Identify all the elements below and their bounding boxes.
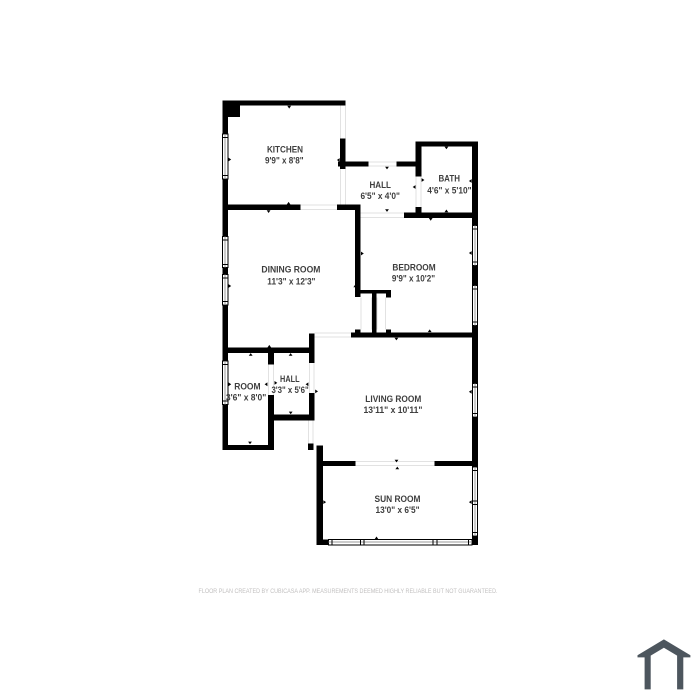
svg-text:KITCHEN: KITCHEN [267,145,303,155]
svg-text:LIVING ROOM: LIVING ROOM [365,394,421,404]
svg-text:3'3" x 5'6": 3'3" x 5'6" [271,385,308,395]
svg-text:FLOOR PLAN CREATED BY CUBICASA: FLOOR PLAN CREATED BY CUBICASA APP. MEAS… [199,588,498,595]
svg-text:13'0" x 6'5": 13'0" x 6'5" [376,505,420,515]
svg-text:HALL: HALL [369,180,391,190]
svg-text:ROOM: ROOM [234,381,260,391]
svg-text:4'6" x 5'10": 4'6" x 5'10" [427,185,471,195]
svg-text:9'9" x 10'2": 9'9" x 10'2" [392,274,435,284]
svg-text:BATH: BATH [438,174,460,184]
svg-text:11'3" x 12'3": 11'3" x 12'3" [267,277,315,287]
svg-text:SUN ROOM: SUN ROOM [375,494,421,504]
svg-text:9'9" x 8'8": 9'9" x 8'8" [265,156,304,166]
svg-text:BEDROOM: BEDROOM [392,262,435,272]
svg-text:6'5" x 4'0": 6'5" x 4'0" [360,191,400,201]
svg-text:DINING ROOM: DINING ROOM [261,265,320,275]
svg-text:HALL: HALL [280,374,300,384]
svg-text:13'11" x 10'11": 13'11" x 10'11" [364,405,423,415]
svg-text:3'6" x 8'0": 3'6" x 8'0" [226,393,266,403]
